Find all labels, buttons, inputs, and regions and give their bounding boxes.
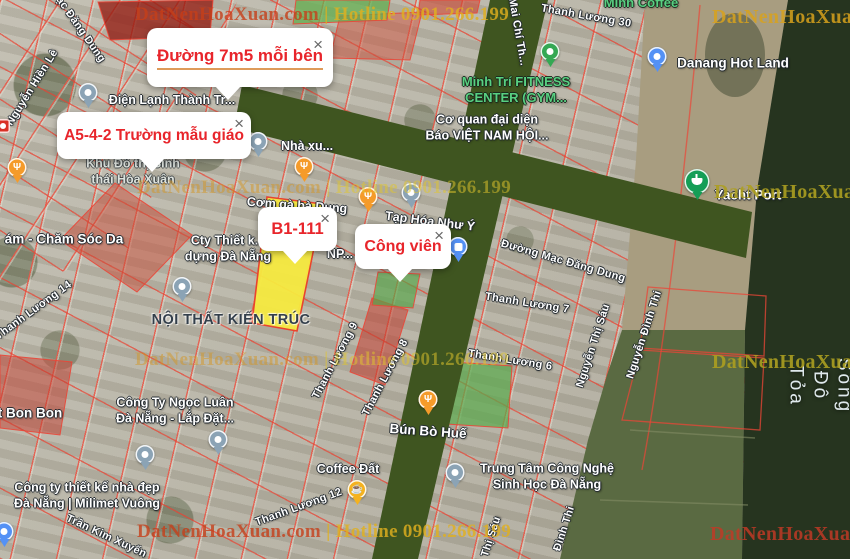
poi-pin-restaurant-tap-hoa[interactable]: Ψ: [359, 187, 378, 217]
close-icon[interactable]: ×: [434, 227, 444, 244]
close-icon[interactable]: ×: [313, 36, 323, 53]
close-icon[interactable]: ×: [234, 115, 244, 132]
poi-pin-restaurant-bun-bo[interactable]: Ψ: [419, 390, 438, 420]
poi-pin-ngoc-luan-2[interactable]: [209, 430, 228, 460]
poi-pin-coffee-dat[interactable]: ☕: [348, 480, 367, 510]
poi-pin-yacht-port[interactable]: [685, 169, 710, 205]
map-pins-layer: ΨΨΨΨ☕: [0, 0, 850, 559]
poi-pin-tap-hoa-blue[interactable]: [402, 183, 421, 213]
poi-pin-minh-tri[interactable]: [541, 42, 560, 72]
poi-pin-bottom-left[interactable]: [0, 522, 14, 552]
poi-pin-nha-xe[interactable]: [249, 132, 268, 162]
poi-pin-restaurant-left[interactable]: Ψ: [8, 158, 27, 188]
poi-pin-dien-lanh[interactable]: [79, 83, 98, 113]
callout-a5-4-2-label: A5-4-2 Trường mẫu giáo: [64, 127, 244, 145]
poi-pin-trung-tam[interactable]: [446, 463, 465, 493]
poi-pin-noi-that[interactable]: [173, 277, 192, 307]
callout-a5-4-2-truong-mau-giao[interactable]: × A5-4-2 Trường mẫu giáo: [57, 112, 251, 159]
callout-cong-vien-label: Công viên: [364, 238, 441, 256]
callout-b1-111[interactable]: × B1-111: [258, 207, 337, 251]
callout-cong-vien[interactable]: × Công viên: [355, 224, 451, 269]
callout-b1-111-label: B1-111: [271, 220, 323, 239]
poi-pin-shopping-bag[interactable]: [449, 237, 468, 267]
poi-icon-shop-left[interactable]: [0, 119, 10, 133]
close-icon[interactable]: ×: [320, 210, 330, 227]
callout-duong-7m5-label: Đường 7m5 mỗi bên: [157, 46, 323, 70]
map-canvas[interactable]: Nguyễn Hiền Lêạc Đăng DungThanh Lương 30…: [0, 0, 850, 559]
poi-pin-ngoc-luan-1[interactable]: [136, 445, 155, 475]
poi-pin-danang-hot-land[interactable]: [648, 47, 667, 77]
poi-pin-restaurant-com-ga[interactable]: Ψ: [295, 157, 314, 187]
callout-duong-7m5[interactable]: × Đường 7m5 mỗi bên: [147, 28, 333, 87]
